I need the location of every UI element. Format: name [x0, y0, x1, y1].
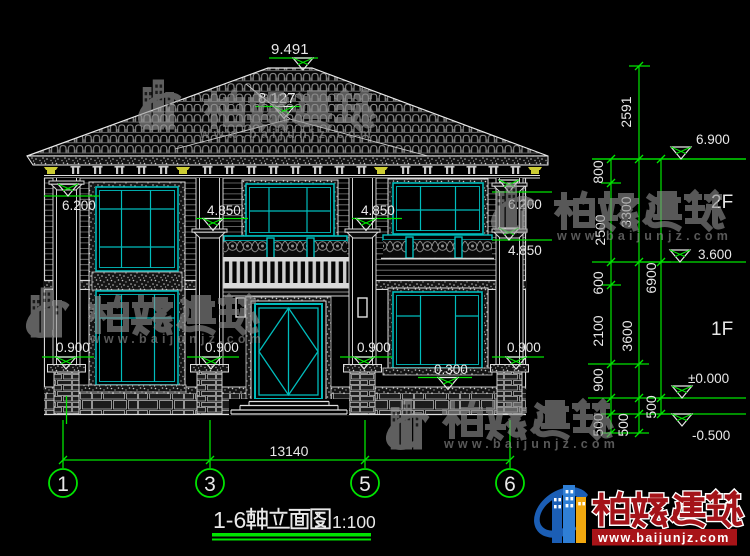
svg-text:www.baijunjz.com: www.baijunjz.com	[443, 437, 619, 451]
svg-text:6900: 6900	[643, 262, 659, 293]
svg-text:1F: 1F	[711, 319, 733, 340]
svg-text:www.baijunjz.com: www.baijunjz.com	[89, 332, 265, 346]
svg-text:0.900: 0.900	[357, 340, 391, 355]
svg-text:www.baijunjz.com: www.baijunjz.com	[597, 531, 730, 545]
svg-text:0.300: 0.300	[434, 362, 468, 377]
svg-text:500: 500	[615, 413, 631, 437]
svg-text:1: 1	[57, 473, 69, 496]
svg-text:3.600: 3.600	[698, 247, 732, 262]
svg-text:3600: 3600	[619, 320, 635, 351]
svg-text:-0.500: -0.500	[692, 428, 730, 443]
svg-text:900: 900	[590, 368, 606, 392]
svg-text:±0.000: ±0.000	[688, 371, 729, 386]
svg-text:1-6: 1-6	[213, 507, 246, 533]
svg-text:6: 6	[504, 473, 516, 496]
svg-text:4.850: 4.850	[508, 243, 542, 258]
svg-text:6.900: 6.900	[696, 132, 730, 147]
svg-text:6.200: 6.200	[62, 198, 96, 213]
svg-text:13140: 13140	[270, 443, 309, 459]
svg-text:3: 3	[204, 473, 216, 496]
svg-text:4.850: 4.850	[361, 203, 395, 218]
svg-text:2591: 2591	[618, 96, 634, 127]
svg-text:500: 500	[643, 395, 659, 419]
svg-text:600: 600	[590, 271, 606, 295]
svg-text:9.491: 9.491	[271, 41, 309, 58]
svg-text:www.baijunjz.com: www.baijunjz.com	[199, 127, 375, 141]
svg-text:800: 800	[590, 160, 606, 184]
svg-text:4.850: 4.850	[207, 203, 241, 218]
svg-text:2100: 2100	[590, 315, 606, 346]
svg-text:0.900: 0.900	[507, 340, 541, 355]
svg-text:1:100: 1:100	[332, 512, 376, 532]
svg-text:www.baijunjz.com: www.baijunjz.com	[556, 229, 732, 243]
svg-text:5: 5	[359, 473, 371, 496]
svg-text:0.900: 0.900	[56, 340, 90, 355]
